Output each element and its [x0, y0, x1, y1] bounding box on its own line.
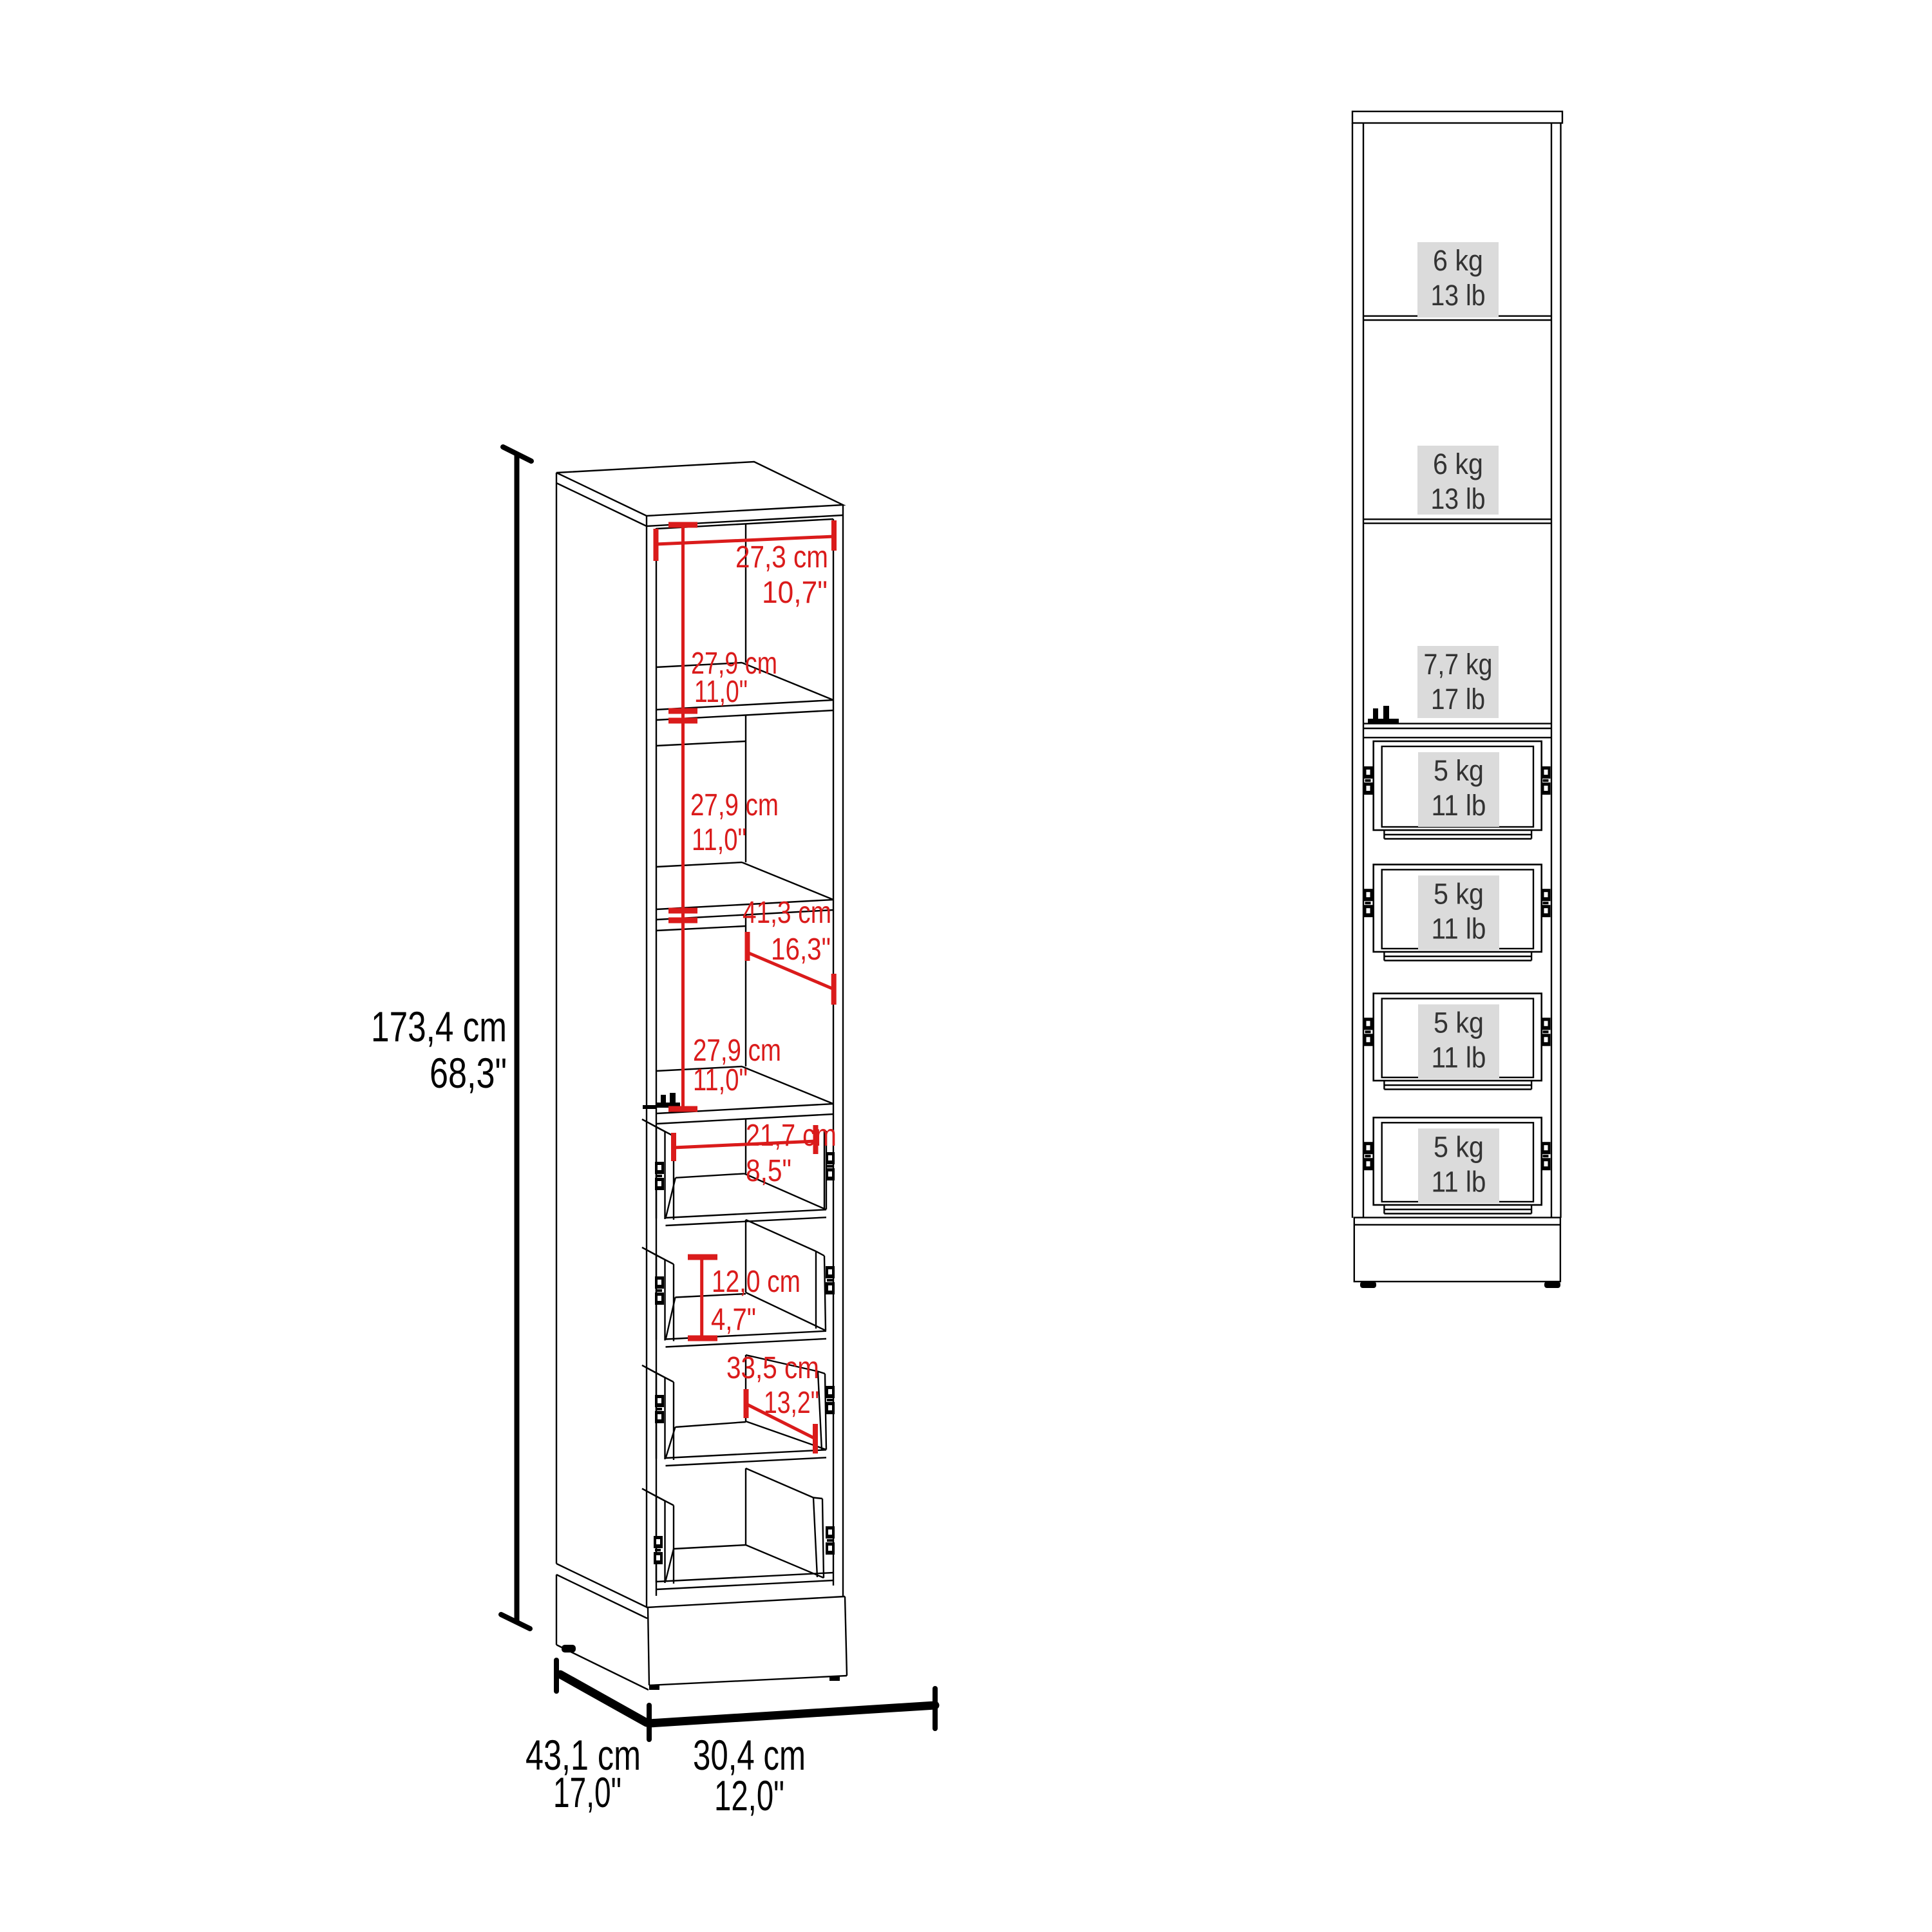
svg-text:33,5 cm: 33,5 cm	[726, 1351, 819, 1385]
svg-text:6 kg: 6 kg	[1433, 245, 1483, 277]
svg-text:11 lb: 11 lb	[1432, 1042, 1486, 1074]
svg-text:21,7 cm: 21,7 cm	[746, 1118, 837, 1152]
svg-text:27,9 cm: 27,9 cm	[690, 788, 779, 822]
svg-text:68,3": 68,3"	[430, 1049, 507, 1097]
svg-text:11 lb: 11 lb	[1432, 790, 1486, 822]
svg-text:11,0": 11,0"	[693, 1063, 748, 1097]
svg-text:5 kg: 5 kg	[1434, 1007, 1484, 1039]
svg-text:17,0": 17,0"	[553, 1769, 621, 1817]
svg-text:16,3": 16,3"	[771, 933, 831, 967]
svg-text:6 kg: 6 kg	[1433, 448, 1483, 480]
svg-text:17 lb: 17 lb	[1431, 683, 1485, 715]
svg-text:13 lb: 13 lb	[1431, 482, 1486, 515]
svg-text:12,0": 12,0"	[714, 1772, 784, 1820]
svg-text:10,7": 10,7"	[762, 574, 828, 609]
svg-text:41,3 cm: 41,3 cm	[743, 895, 831, 930]
svg-text:11 lb: 11 lb	[1432, 913, 1486, 945]
svg-text:5 kg: 5 kg	[1434, 755, 1484, 787]
svg-text:5 kg: 5 kg	[1434, 878, 1484, 911]
svg-text:4,7": 4,7"	[711, 1303, 756, 1337]
svg-text:13,2": 13,2"	[764, 1386, 819, 1421]
svg-text:11,0": 11,0"	[694, 675, 748, 710]
svg-text:11,0": 11,0"	[692, 823, 746, 857]
svg-text:11 lb: 11 lb	[1432, 1166, 1486, 1198]
svg-text:27,3 cm: 27,3 cm	[735, 540, 828, 574]
svg-text:7,7 kg: 7,7 kg	[1424, 649, 1493, 681]
svg-text:173,4 cm: 173,4 cm	[371, 1003, 507, 1051]
svg-text:8,5": 8,5"	[746, 1154, 791, 1188]
svg-text:12,0 cm: 12,0 cm	[712, 1264, 800, 1299]
svg-text:5 kg: 5 kg	[1434, 1132, 1484, 1164]
svg-text:13 lb: 13 lb	[1431, 279, 1486, 311]
